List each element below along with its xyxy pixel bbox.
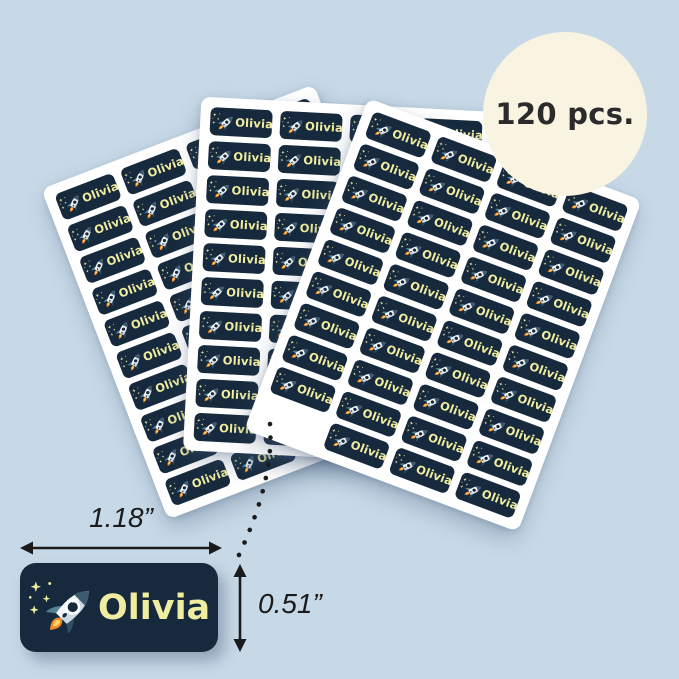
sticker-name-text: Olivia	[372, 374, 413, 400]
width-arrow	[20, 542, 222, 555]
count-badge-label: 120 pcs.	[495, 97, 634, 131]
name-sticker: Olivia	[199, 311, 262, 342]
width-arrowhead-left	[20, 542, 33, 555]
rocket-with-stars-icon	[203, 245, 228, 269]
rocket-with-stars-icon	[202, 279, 227, 303]
name-sticker: Olivia	[209, 107, 272, 138]
sticker-name-text: Olivia	[354, 222, 395, 248]
sticker-name-text: Olivia	[515, 391, 556, 417]
name-sticker: Olivia	[208, 141, 271, 172]
sticker-name-text: Olivia	[456, 151, 497, 177]
sticker-name-text: Olivia	[414, 462, 455, 488]
sticker-name-text: Olivia	[104, 242, 145, 269]
rocket-with-stars-icon	[211, 110, 236, 134]
sticker-name-text: Olivia	[145, 154, 186, 181]
product-image: OliviaOliviaOliviaOliviaOliviaOliviaOliv…	[0, 0, 679, 679]
sticker-name-text: Olivia	[349, 437, 390, 463]
height-arrowhead-bottom	[234, 639, 247, 652]
rocket-with-stars-icon	[275, 215, 300, 239]
sticker-name-text: Olivia	[444, 183, 485, 209]
sticker-name-text: Olivia	[224, 319, 263, 335]
sticker-name-text: Olivia	[408, 278, 449, 304]
sticker-name-text: Olivia	[462, 335, 503, 361]
sticker-name-text: Olivia	[235, 115, 274, 131]
sticker-name-text: Olivia	[497, 239, 538, 265]
rocket-with-stars-icon	[198, 347, 223, 371]
sticker-name-text: Olivia	[228, 251, 267, 267]
label-preview: Olivia	[20, 563, 218, 652]
sticker-name-text: Olivia	[226, 285, 265, 301]
rocket-with-stars-icon	[273, 249, 298, 273]
name-sticker: Olivia	[195, 379, 258, 410]
rocket-with-stars-icon	[200, 313, 225, 337]
sticker-name-text: Olivia	[295, 381, 336, 407]
sticker-name-text: Olivia	[366, 190, 407, 216]
sticker-name-text: Olivia	[343, 254, 384, 280]
sticker-name-text: Olivia	[303, 153, 342, 169]
sticker-name-text: Olivia	[504, 423, 545, 449]
rocket-with-stars-icon	[205, 212, 230, 236]
name-sticker: Olivia	[206, 175, 269, 206]
sticker-name-text: Olivia	[141, 337, 182, 364]
sticker-name-text: Olivia	[80, 179, 121, 206]
sticker-name-text: Olivia	[450, 366, 491, 392]
name-sticker: Olivia	[197, 345, 260, 376]
rocket-with-stars-icon	[279, 147, 304, 171]
sticker-name-text: Olivia	[492, 455, 533, 481]
sticker-name-text: Olivia	[509, 207, 550, 233]
sticker-name-text: Olivia	[539, 327, 580, 353]
sticker-name-text: Olivia	[92, 211, 133, 238]
sticker-name-text: Olivia	[587, 200, 628, 226]
sticker-name-text: Olivia	[474, 303, 515, 329]
label-height-dimension: 0.51”	[258, 588, 322, 620]
count-badge: 120 pcs.	[483, 32, 647, 196]
sticker-name-text: Olivia	[551, 295, 592, 321]
label-preview-name-text: Olivia	[98, 588, 210, 628]
sticker-name-text: Olivia	[575, 232, 616, 258]
sticker-name-text: Olivia	[432, 214, 473, 240]
height-arrow	[234, 564, 247, 652]
rocket-with-stars-icon	[196, 381, 221, 405]
rocket-with-stars-icon	[207, 178, 232, 202]
name-sticker: Olivia	[202, 243, 265, 274]
sticker-name-text: Olivia	[378, 158, 419, 184]
height-arrowhead-top	[234, 564, 247, 577]
sticker-name-text: Olivia	[390, 126, 431, 152]
sticker-name-text: Olivia	[480, 486, 521, 512]
sticker-name-text: Olivia	[384, 342, 425, 368]
sticker-name-text: Olivia	[305, 119, 344, 135]
rocket-with-stars-icon	[195, 415, 220, 439]
sticker-name-text: Olivia	[117, 274, 158, 301]
sticker-name-text: Olivia	[563, 263, 604, 289]
sticker-name-text: Olivia	[221, 387, 260, 403]
name-sticker: Olivia	[201, 277, 264, 308]
sticker-name-text: Olivia	[438, 398, 479, 424]
rocket-with-stars-icon	[280, 113, 305, 137]
sticker-name-text: Olivia	[319, 317, 360, 343]
width-arrowhead-right	[209, 542, 222, 555]
sticker-name-text: Olivia	[360, 406, 401, 432]
name-sticker: Olivia	[204, 209, 267, 240]
sticker-name-text: Olivia	[527, 359, 568, 385]
sticker-name-text: Olivia	[331, 285, 372, 311]
name-sticker: Olivia	[279, 111, 342, 142]
sticker-name-text: Olivia	[158, 185, 199, 212]
label-width-dimension: 1.18”	[18, 502, 224, 534]
sticker-name-text: Olivia	[222, 353, 261, 369]
sticker-name-text: Olivia	[420, 246, 461, 272]
sticker-name-text: Olivia	[231, 183, 270, 199]
sticker-name-text: Olivia	[129, 306, 170, 333]
sticker-name-text: Olivia	[396, 310, 437, 336]
sticker-name-text: Olivia	[426, 430, 467, 456]
sticker-name-text: Olivia	[486, 271, 527, 297]
sticker-name-text: Olivia	[233, 149, 272, 165]
sticker-name-text: Olivia	[307, 349, 348, 375]
name-sticker: Olivia	[278, 145, 341, 176]
rocket-with-stars-icon	[26, 575, 98, 641]
sticker-name-text: Olivia	[190, 464, 231, 491]
sticker-name-text: Olivia	[229, 217, 268, 233]
rocket-with-stars-icon	[209, 144, 234, 168]
rocket-with-stars-icon	[277, 181, 302, 205]
